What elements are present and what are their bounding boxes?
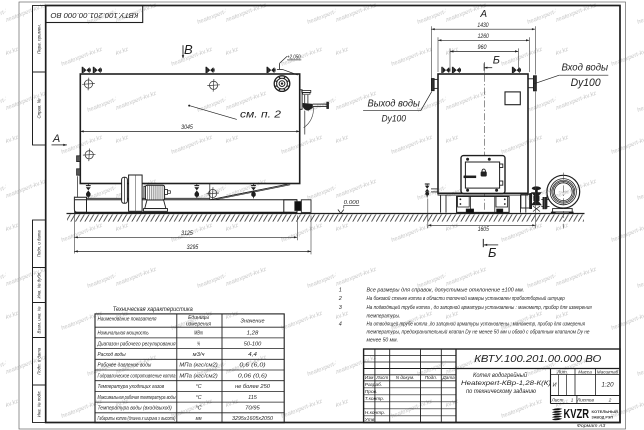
svg-text:0,06 (0,6): 0,06 (0,6) [238, 373, 268, 379]
svg-text:0,6 (6,0): 0,6 (6,0) [239, 363, 266, 369]
svg-text:Heatexpert-КВр-1,28-К(К): Heatexpert-КВр-1,28-К(К) [461, 381, 551, 387]
svg-text:115: 115 [248, 395, 257, 401]
svg-text:по техническому заданию: по техническому заданию [466, 389, 536, 395]
svg-text:Расход воды: Расход воды [98, 352, 126, 358]
svg-text:Наименование показателя: Наименование показателя [98, 317, 157, 323]
svg-text:Утв.: Утв. [365, 417, 376, 423]
svg-text:1:20: 1:20 [601, 382, 614, 389]
svg-text:Лист: Лист [375, 375, 388, 380]
svg-text:Б: Б [493, 55, 500, 67]
svg-text:не более 250: не более 250 [235, 384, 270, 390]
svg-text:Максимальная рабочая температу: Максимальная рабочая температура воды [98, 395, 176, 401]
svg-text:И: И [553, 383, 557, 389]
svg-text:Гидравлическое сопротивление к: Гидравлическое сопротивление котла [98, 373, 176, 379]
svg-text:Листов: Листов [576, 397, 594, 402]
svg-text:На боковой стенке котла в обла: На боковой стенке котла в области топочн… [367, 295, 565, 302]
svg-text:N докум.: N докум. [396, 375, 415, 380]
svg-text:1605: 1605 [478, 226, 490, 233]
svg-text:Перв. примен.: Перв. примен. [37, 24, 42, 54]
svg-text:Подп. и дата: Подп. и дата [37, 230, 42, 258]
svg-text:мм: мм [196, 416, 202, 422]
svg-text:Справ. №: Справ. № [37, 98, 42, 118]
svg-text:1: 1 [571, 397, 574, 402]
svg-text:МПа (кгс/см2): МПа (кгс/см2) [179, 363, 218, 369]
svg-text:Подп. и дата: Подп. и дата [37, 347, 42, 375]
svg-text:МВт: МВт [194, 331, 203, 337]
svg-text:°С: °С [196, 395, 202, 401]
svg-text:Лист: Лист [551, 397, 564, 402]
svg-text:температуры.: температуры. [367, 313, 401, 319]
svg-text:Dy100: Dy100 [382, 113, 406, 123]
svg-text:70/95: 70/95 [245, 405, 260, 411]
svg-text:КОТЕЛЬНЫЙ: КОТЕЛЬНЫЙ [592, 409, 619, 414]
svg-text:Подп.: Подп. [425, 375, 437, 380]
svg-text:Номинальная мощность: Номинальная мощность [98, 331, 149, 337]
svg-text:Б: Б [488, 245, 497, 260]
svg-text:МПа (кгс/см2): МПа (кгс/см2) [179, 373, 218, 379]
svg-text:Температура уходящих газов: Температура уходящих газов [98, 384, 165, 390]
svg-text:960: 960 [478, 44, 487, 51]
svg-text:Температура воды (вход/выход): Температура воды (вход/выход) [98, 405, 172, 411]
svg-text:А: А [479, 9, 487, 20]
svg-text:Диапазон рабочего регулировани: Диапазон рабочего регулирования [97, 341, 176, 347]
svg-text:Габариты котла (длинна х ширин: Габариты котла (длинна х ширина х высота… [98, 416, 176, 422]
svg-text:На подводящей трубе котла , д: На подводящей трубе котла , до запорной … [367, 304, 592, 311]
svg-text:Дата: Дата [442, 375, 456, 380]
svg-text:°С: °С [196, 405, 202, 411]
svg-text:Масса: Масса [578, 369, 592, 374]
svg-text:см. п. 2: см. п. 2 [240, 109, 281, 121]
svg-text:1260: 1260 [478, 33, 490, 40]
svg-text:Котел водогрейный: Котел водогрейный [473, 372, 528, 379]
svg-text:KVZR: KVZR [564, 406, 590, 421]
svg-text:КВТУ.100.201.00.000 ВО: КВТУ.100.201.00.000 ВО [474, 354, 601, 365]
svg-text:2: 2 [338, 296, 342, 302]
svg-text:А: А [52, 133, 60, 145]
svg-text:3295х1605х2050: 3295х1605х2050 [232, 416, 273, 422]
svg-text:50-100: 50-100 [244, 341, 262, 347]
svg-text:3295: 3295 [187, 244, 199, 251]
svg-text:Значение: Значение [241, 319, 265, 325]
svg-text:Пров.: Пров. [365, 389, 378, 395]
svg-text:1: 1 [339, 288, 342, 294]
svg-text:На отводящей трубе котла ,до з: На отводящей трубе котла ,до запорной ар… [367, 320, 586, 327]
svg-text:Рабочее давление воды: Рабочее давление воды [98, 363, 152, 369]
svg-text:Инв. № подл.: Инв. № подл. [37, 390, 42, 417]
svg-text:температуры, предохранительный: температуры, предохранительный клапан Dу… [367, 329, 590, 336]
svg-text:%: % [197, 341, 200, 347]
svg-text:В: В [184, 42, 193, 57]
svg-text:менее 50 мм.: менее 50 мм. [367, 338, 399, 344]
svg-text:Выход воды: Выход воды [368, 99, 421, 110]
svg-text:Изм: Изм [365, 375, 374, 380]
svg-text:Инв. № дубл.: Инв. № дубл. [37, 272, 42, 299]
svg-text:Масштаб: Масштаб [597, 369, 619, 374]
svg-text:Вход воды: Вход воды [562, 62, 609, 73]
svg-text:4: 4 [339, 321, 342, 327]
svg-text:Техническая характеристика: Техническая характеристика [113, 306, 194, 313]
svg-text:1430: 1430 [477, 22, 489, 29]
svg-text:+2.050: +2.050 [287, 55, 301, 61]
svg-text:Взам. инв. №: Взам. инв. № [37, 306, 42, 333]
svg-text:измерения: измерения [186, 321, 211, 327]
svg-text:м3/ч: м3/ч [193, 352, 205, 358]
svg-text:ВЦ-14-46: ВЦ-14-46 [559, 191, 569, 194]
svg-text:Н.контр.: Н.контр. [365, 410, 385, 416]
svg-text:4,4: 4,4 [248, 352, 257, 358]
svg-text:1,28: 1,28 [247, 331, 259, 337]
svg-text:КВТУ.100.201.00.000 ВО: КВТУ.100.201.00.000 ВО [50, 11, 138, 20]
svg-text:°С: °С [196, 384, 202, 390]
svg-text:2: 2 [608, 397, 612, 402]
svg-text:Единицы: Единицы [188, 315, 209, 321]
svg-text:Разраб.: Разраб. [365, 382, 382, 388]
svg-text:3125: 3125 [181, 230, 193, 237]
svg-text:ЗАВОД РЭП: ЗАВОД РЭП [592, 414, 614, 419]
svg-text:Лит.: Лит. [556, 369, 568, 374]
svg-text:Все размеры для справок, допус: Все размеры для справок, допустимые откл… [367, 288, 525, 294]
svg-text:Формат А3: Формат А3 [577, 423, 606, 429]
svg-text:3045: 3045 [181, 124, 193, 131]
svg-text:Т.контр.: Т.контр. [365, 396, 384, 402]
svg-text:Dy100: Dy100 [571, 77, 602, 89]
